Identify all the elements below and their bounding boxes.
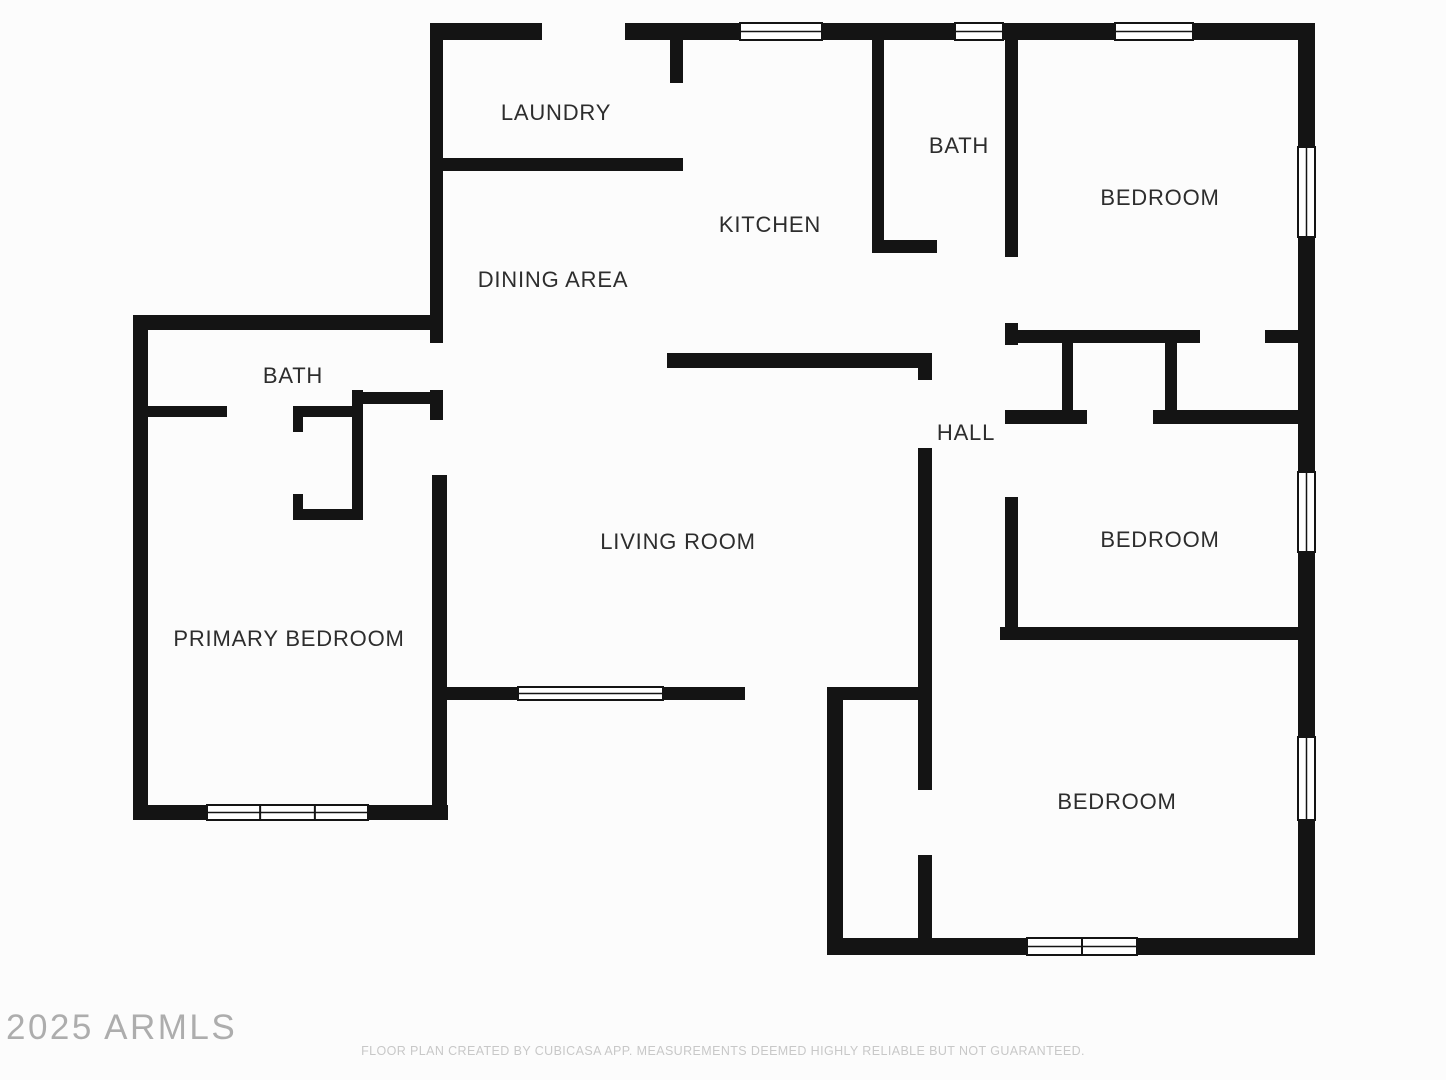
room-label-primary-bedroom: PRIMARY BEDROOM [173,626,404,651]
wall [1165,335,1177,420]
wall [430,158,683,171]
wall [918,353,932,380]
wall [842,687,922,700]
wall [430,23,443,170]
wall [667,353,930,368]
room-label-laundry: LAUNDRY [501,100,611,125]
wall [1298,23,1315,147]
wall [822,23,955,40]
armls-watermark: 2025 ARMLS [6,1008,237,1048]
wall [148,406,227,417]
wall [352,390,363,520]
room-label-living-room: LIVING ROOM [600,529,756,554]
wall [1298,237,1315,472]
wall [133,315,148,820]
wall [1153,410,1315,424]
room-label-bedroom-bottom: BEDROOM [1057,789,1176,814]
wall [872,240,937,253]
wall [1062,335,1073,420]
room-label-bedroom-middle: BEDROOM [1100,527,1219,552]
wall [368,805,448,820]
wall [430,23,542,40]
wall [1298,552,1315,737]
wall [432,475,447,820]
wall [1265,330,1315,343]
wall [1005,497,1018,630]
floor-plan: LAUNDRYKITCHENBATHBEDROOMDINING AREAHALL… [0,0,1446,1080]
wall [1137,938,1315,955]
room-label-bedroom-top: BEDROOM [1100,185,1219,210]
wall [918,687,932,790]
wall [918,855,932,950]
room-label-bath-left: BATH [263,363,323,388]
wall [133,805,207,820]
cubicasa-disclaimer: FLOOR PLAN CREATED BY CUBICASA APP. MEAS… [0,1044,1446,1058]
wall [827,687,843,950]
room-label-kitchen: KITCHEN [719,212,821,237]
floor-plan-svg: LAUNDRYKITCHENBATHBEDROOMDINING AREAHALL… [0,0,1446,1080]
wall [1005,410,1087,424]
wall [1000,627,1315,640]
wall [293,406,303,432]
wall [1298,820,1315,955]
room-label-hall: HALL [937,420,995,445]
wall [872,30,884,253]
wall [293,509,363,520]
wall [437,687,518,700]
wall [353,392,438,404]
room-label-bath-top: BATH [929,133,989,158]
wall [1003,23,1115,40]
room-label-dining-area: DINING AREA [478,267,629,292]
wall [918,448,932,688]
wall [1005,30,1018,257]
wall [133,315,435,330]
wall [670,31,683,83]
wall [1193,23,1315,40]
wall [293,494,303,520]
wall [663,687,745,700]
